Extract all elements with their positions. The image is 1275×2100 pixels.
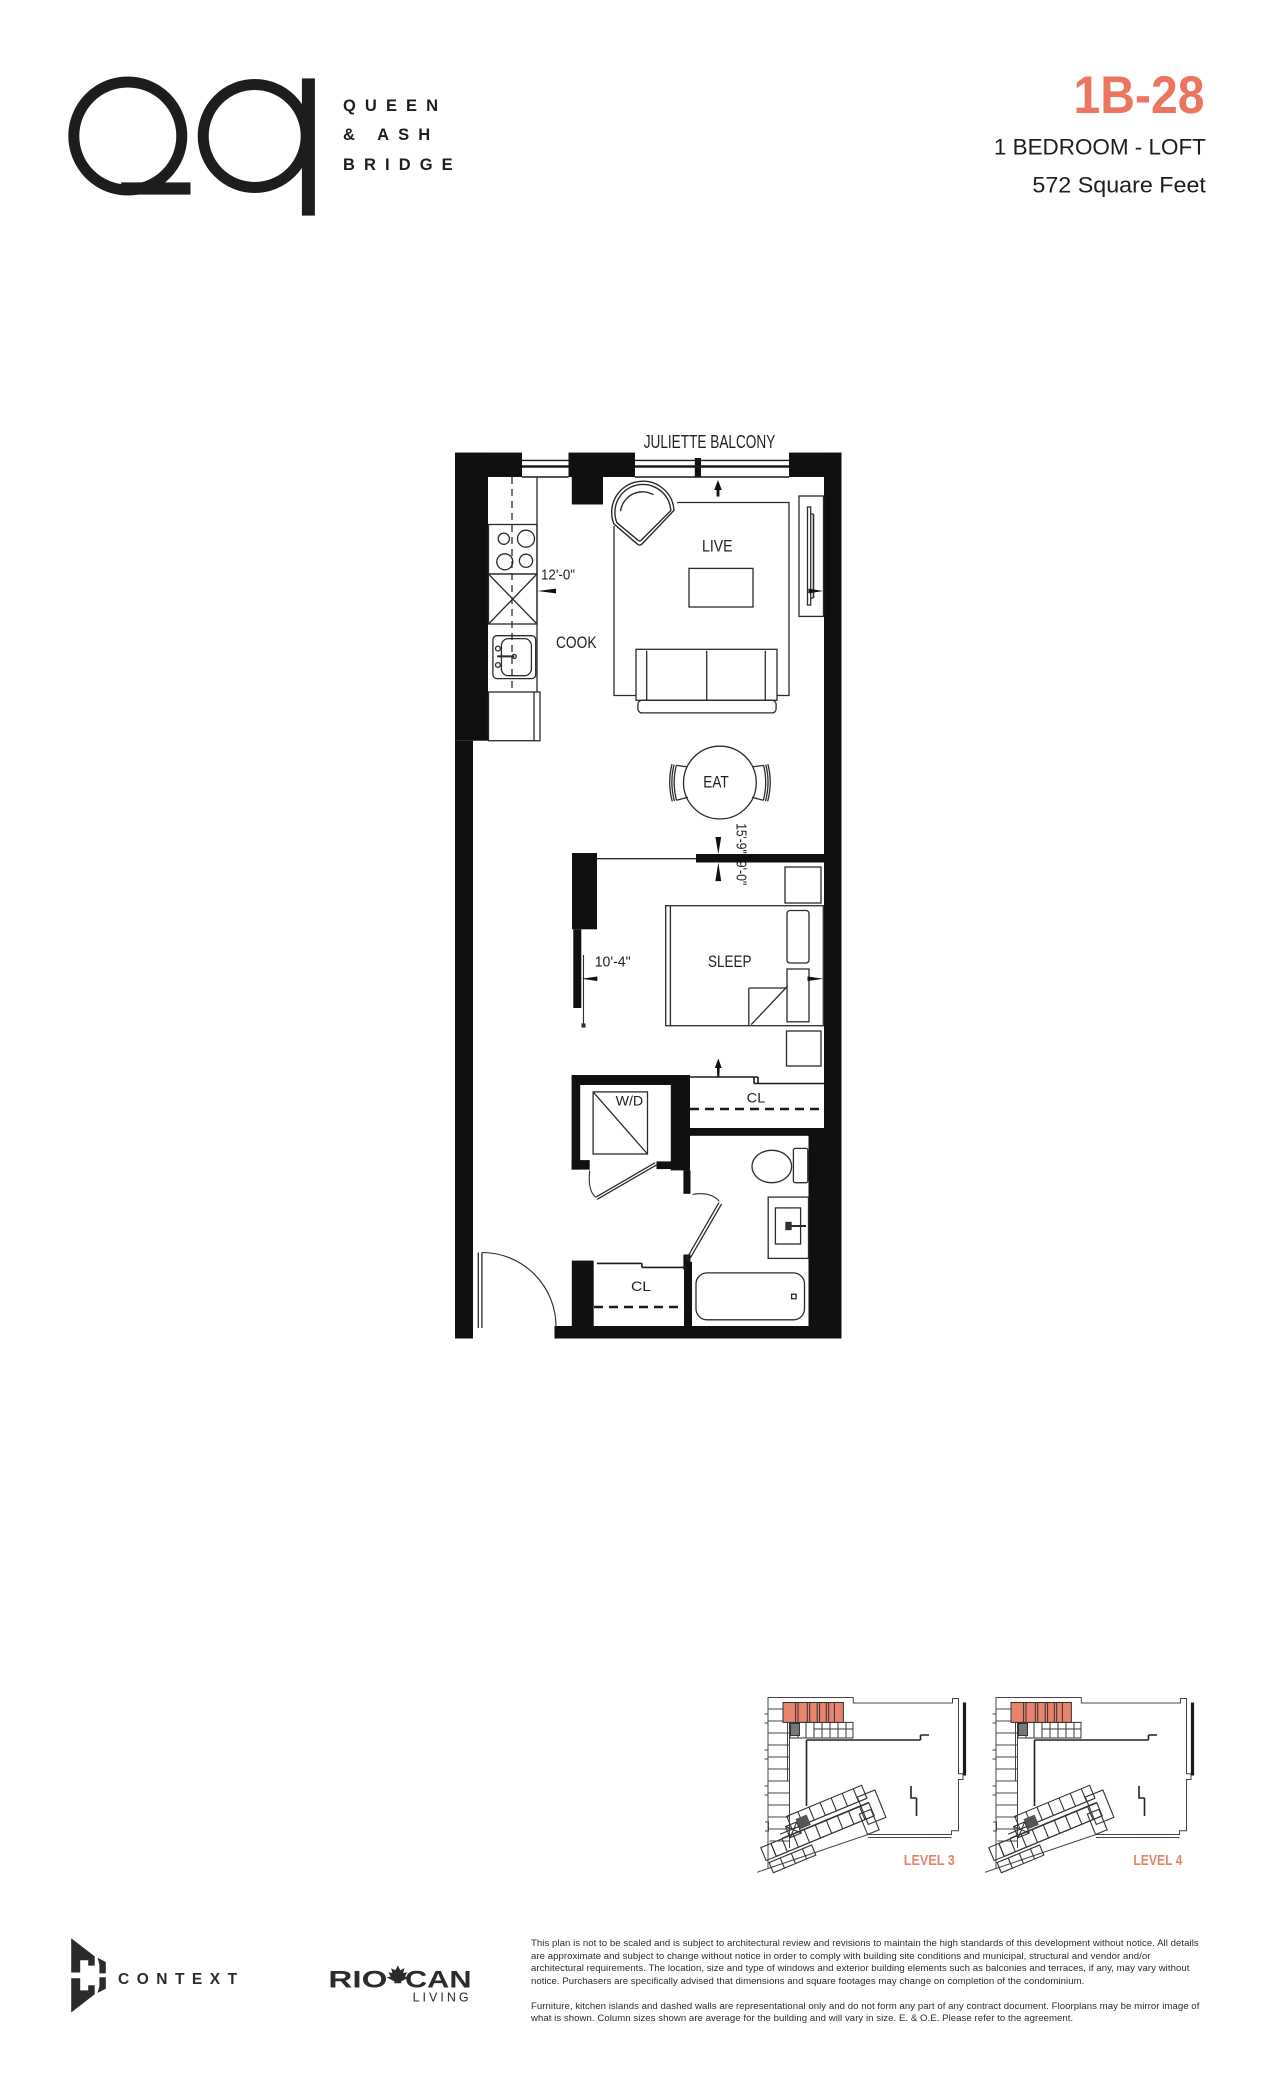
svg-text:12'-0": 12'-0" bbox=[541, 568, 575, 584]
svg-text:CL: CL bbox=[747, 1089, 766, 1105]
svg-text:LEVEL 4: LEVEL 4 bbox=[1133, 1852, 1183, 1869]
svg-text:9'-0": 9'-0" bbox=[733, 861, 749, 886]
svg-text:LIVING: LIVING bbox=[413, 1991, 472, 2005]
svg-text:CAN: CAN bbox=[405, 1967, 472, 1994]
svg-text:15'-9": 15'-9" bbox=[733, 823, 749, 854]
svg-text:RIO: RIO bbox=[328, 1967, 387, 1994]
svg-text:W/D: W/D bbox=[616, 1093, 644, 1109]
svg-text:10'-4": 10'-4" bbox=[595, 955, 631, 971]
svg-text:COOK: COOK bbox=[556, 634, 597, 652]
svg-text:EAT: EAT bbox=[703, 773, 728, 791]
svg-text:CONTEXT: CONTEXT bbox=[118, 1971, 245, 1988]
svg-text:SLEEP: SLEEP bbox=[708, 953, 752, 971]
svg-text:JULIETTE BALCONY: JULIETTE BALCONY bbox=[644, 431, 776, 452]
svg-text:LEVEL 3: LEVEL 3 bbox=[904, 1852, 955, 1869]
svg-text:CL: CL bbox=[631, 1278, 651, 1294]
svg-text:LIVE: LIVE bbox=[702, 538, 733, 556]
